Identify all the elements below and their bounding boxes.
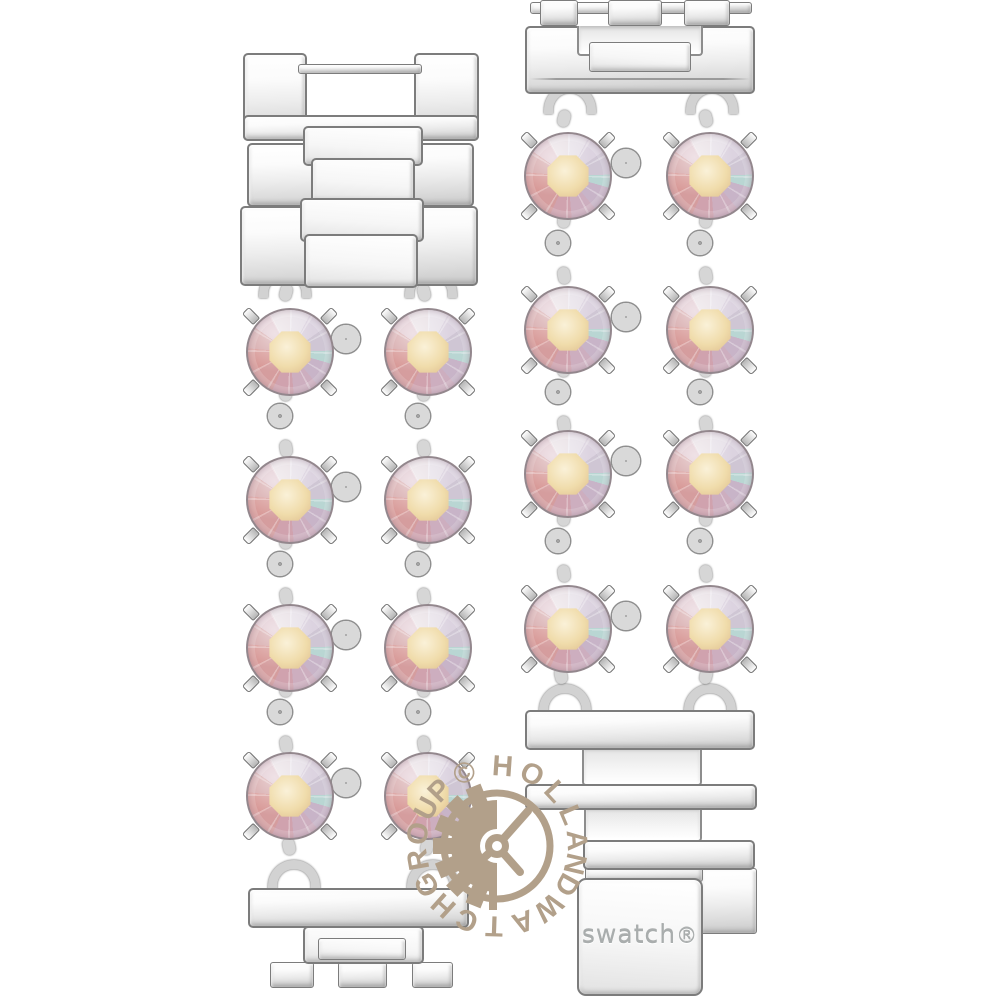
crystal (384, 456, 472, 544)
connector-loop (556, 266, 570, 285)
crystal-table-facet (689, 453, 731, 495)
connector-loop (556, 564, 570, 583)
prong-icon (662, 656, 680, 674)
left-end-tongue-panel (318, 938, 406, 960)
prong-icon (662, 131, 680, 149)
right-end-plate-panel (589, 42, 691, 72)
prong-icon (458, 307, 476, 325)
clasp-spring-bar (298, 64, 422, 74)
prong-icon (740, 501, 758, 519)
clasp-link3-panel (304, 234, 418, 288)
prong-icon (320, 751, 338, 769)
right-link-inset (584, 808, 702, 842)
watermark-char: O (401, 820, 437, 847)
strap-loop (268, 860, 320, 890)
crystal (666, 585, 754, 673)
prong-icon (380, 455, 398, 473)
prong-icon (320, 603, 338, 621)
crystal-table-facet (547, 608, 589, 650)
crystal-table-facet (547, 155, 589, 197)
prong-icon (458, 675, 476, 693)
prong-icon (242, 751, 260, 769)
crystal (666, 132, 754, 220)
prong-icon (662, 501, 680, 519)
crystal (246, 308, 334, 396)
prong-icon (458, 603, 476, 621)
prong-icon (320, 307, 338, 325)
prong-icon (598, 656, 616, 674)
end-foot (338, 962, 387, 988)
prong-icon (662, 285, 680, 303)
product-photo: swatch® (0, 0, 1000, 1000)
chain-ring (268, 404, 292, 428)
right-link-bar (525, 710, 755, 750)
crystal (524, 430, 612, 518)
connector-loop (416, 587, 430, 606)
prong-icon (740, 656, 758, 674)
brand-engraving: swatch® (579, 920, 701, 949)
prong-icon (242, 527, 260, 545)
chain-ring (546, 231, 570, 255)
chain-ring (688, 529, 712, 553)
prong-icon (520, 131, 538, 149)
prong-icon (380, 823, 398, 841)
crystal (524, 585, 612, 673)
prong-icon (380, 307, 398, 325)
connector-loop (698, 266, 712, 285)
prong-icon (320, 527, 338, 545)
prong-icon (242, 675, 260, 693)
prong-icon (320, 455, 338, 473)
prong-icon (598, 285, 616, 303)
prong-icon (242, 603, 260, 621)
watermark-char: A (559, 829, 593, 852)
prong-icon (458, 527, 476, 545)
prong-icon (380, 379, 398, 397)
center-jump-ring (332, 473, 360, 501)
prong-icon (320, 823, 338, 841)
prong-icon (598, 429, 616, 447)
prong-icon (520, 656, 538, 674)
connector-loop (416, 439, 430, 458)
plate-seam (530, 78, 750, 80)
right-link-bar (583, 840, 755, 870)
center-jump-ring (332, 325, 360, 353)
prong-icon (380, 603, 398, 621)
prong-icon (740, 357, 758, 375)
right-link-inset (582, 748, 702, 786)
connector-loop (698, 564, 712, 583)
crystal (524, 132, 612, 220)
crystal (666, 430, 754, 518)
chain-ring (406, 552, 430, 576)
chain-ring (546, 380, 570, 404)
crystal (246, 752, 334, 840)
crystal-table-facet (547, 309, 589, 351)
crystal (524, 286, 612, 374)
swatch-plate: swatch® (577, 878, 703, 996)
center-jump-ring (332, 621, 360, 649)
crystal-table-facet (269, 627, 311, 669)
right-top-tab (540, 0, 578, 26)
crystal (384, 308, 472, 396)
crystal (246, 456, 334, 544)
crystal (246, 604, 334, 692)
prong-icon (320, 675, 338, 693)
chain-ring (406, 404, 430, 428)
prong-icon (242, 823, 260, 841)
prong-icon (520, 357, 538, 375)
prong-icon (458, 455, 476, 473)
crystal-table-facet (269, 479, 311, 521)
center-jump-ring (612, 602, 640, 630)
chain-ring (546, 529, 570, 553)
prong-icon (740, 429, 758, 447)
center-jump-ring (612, 447, 640, 475)
prong-icon (598, 131, 616, 149)
crystal-table-facet (269, 331, 311, 373)
prong-icon (520, 203, 538, 221)
chain-ring (688, 380, 712, 404)
crystal-table-facet (269, 775, 311, 817)
prong-icon (242, 307, 260, 325)
prong-icon (598, 584, 616, 602)
prong-icon (740, 584, 758, 602)
center-jump-ring (612, 149, 640, 177)
prong-icon (380, 675, 398, 693)
right-top-tab (684, 0, 730, 26)
crystal-table-facet (407, 479, 449, 521)
prong-icon (598, 203, 616, 221)
prong-icon (458, 379, 476, 397)
right-top-tab (608, 0, 662, 26)
prong-icon (320, 379, 338, 397)
prong-icon (740, 131, 758, 149)
prong-icon (662, 429, 680, 447)
right-side-piece (700, 868, 757, 934)
chain-ring (406, 700, 430, 724)
brand-engraving-text: swatch (582, 920, 676, 949)
connector-loop (278, 735, 292, 754)
chain-ring (268, 552, 292, 576)
center-jump-ring (612, 303, 640, 331)
crystal (384, 604, 472, 692)
crystal-table-facet (689, 155, 731, 197)
crystal-table-facet (689, 309, 731, 351)
crystal-table-facet (407, 331, 449, 373)
prong-icon (242, 379, 260, 397)
connector-loop (416, 735, 430, 754)
prong-icon (662, 357, 680, 375)
prong-icon (520, 429, 538, 447)
prong-icon (662, 203, 680, 221)
watermark-char: T (485, 908, 504, 942)
crystal-table-facet (689, 608, 731, 650)
prong-icon (598, 357, 616, 375)
chain-ring (268, 700, 292, 724)
center-jump-ring (332, 769, 360, 797)
connector-loop (278, 439, 292, 458)
prong-icon (520, 501, 538, 519)
prong-icon (380, 527, 398, 545)
prong-icon (520, 584, 538, 602)
prong-icon (242, 455, 260, 473)
connector-loop (278, 587, 292, 606)
prong-icon (598, 501, 616, 519)
end-foot (412, 962, 453, 988)
prong-icon (380, 751, 398, 769)
prong-icon (520, 285, 538, 303)
chain-ring (688, 231, 712, 255)
prong-icon (662, 584, 680, 602)
watermark-char: H (491, 750, 514, 784)
crystal-table-facet (547, 453, 589, 495)
crystal (666, 286, 754, 374)
end-foot (270, 962, 314, 988)
prong-icon (740, 203, 758, 221)
crystal-table-facet (407, 627, 449, 669)
prong-icon (740, 285, 758, 303)
registered-mark: ® (676, 924, 698, 948)
